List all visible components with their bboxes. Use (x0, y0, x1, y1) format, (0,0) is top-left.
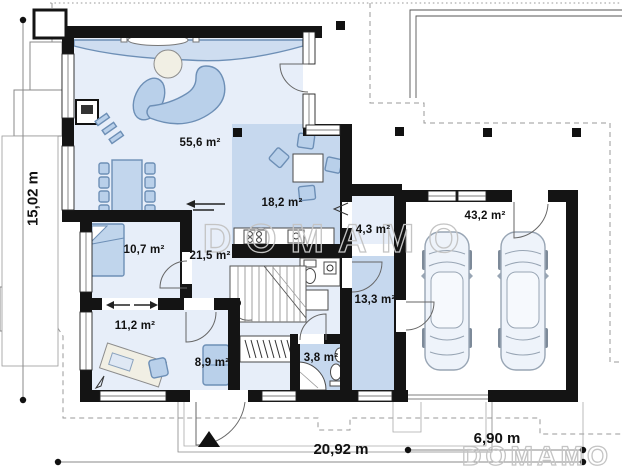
chair (99, 163, 109, 174)
room-area-label-bathroom: 3,8 m² (286, 352, 356, 364)
washing-machine-icon (306, 290, 328, 310)
room-area-label-office: 11,2 m² (100, 320, 170, 332)
entry-door-opening (190, 390, 248, 402)
entrance-marker-icon (198, 431, 220, 447)
room-area-label-garage: 43,2 m² (450, 210, 520, 222)
dimension-bottom-right: 6,90 m (457, 430, 537, 447)
chimney (34, 10, 66, 38)
garage-door-opening (408, 390, 488, 402)
car (497, 232, 549, 370)
room-area-label-living: 55,6 m² (165, 137, 235, 149)
dimension-bottom: 20,92 m (296, 441, 386, 458)
washbasin-icon (324, 262, 336, 274)
bathroom-door-opening (298, 334, 324, 344)
room-area-label-pantry: 4,3 m² (338, 224, 408, 236)
room-area-label-hall: 21,5 m² (175, 250, 245, 262)
dining-set (99, 160, 155, 216)
floor-plan-canvas: DOMAMO DOMAMO 55,6 m² 18,2 m² 4,3 m² 43,… (0, 0, 623, 470)
chair (145, 163, 155, 174)
room-area-label-kitchen: 18,2 m² (247, 197, 317, 209)
kitchen-table (293, 154, 323, 182)
round-table (154, 50, 182, 78)
floor-plan-drawing: DOMAMO DOMAMO (0, 0, 623, 470)
toilet-icon (331, 364, 342, 380)
chair (325, 157, 343, 174)
dining-table (112, 160, 142, 212)
desk-chair (148, 357, 168, 378)
utility-door-opening (342, 258, 352, 288)
terrace-door-opening (303, 64, 315, 94)
entry-door-swing (196, 402, 245, 445)
chair (99, 177, 109, 188)
room-area-label-utility: 13,3 m² (340, 294, 410, 306)
stairs (230, 266, 306, 322)
office-door-opening (184, 298, 214, 310)
room-area-label-vestibule: 8,9 m² (177, 357, 247, 369)
chair (99, 191, 109, 202)
chair (145, 191, 155, 202)
chair (145, 177, 155, 188)
dimension-left: 15,02 m (25, 159, 42, 239)
garage-side-door-opening (512, 190, 548, 202)
room-area-label-bedroom: 10,7 m² (109, 244, 179, 256)
